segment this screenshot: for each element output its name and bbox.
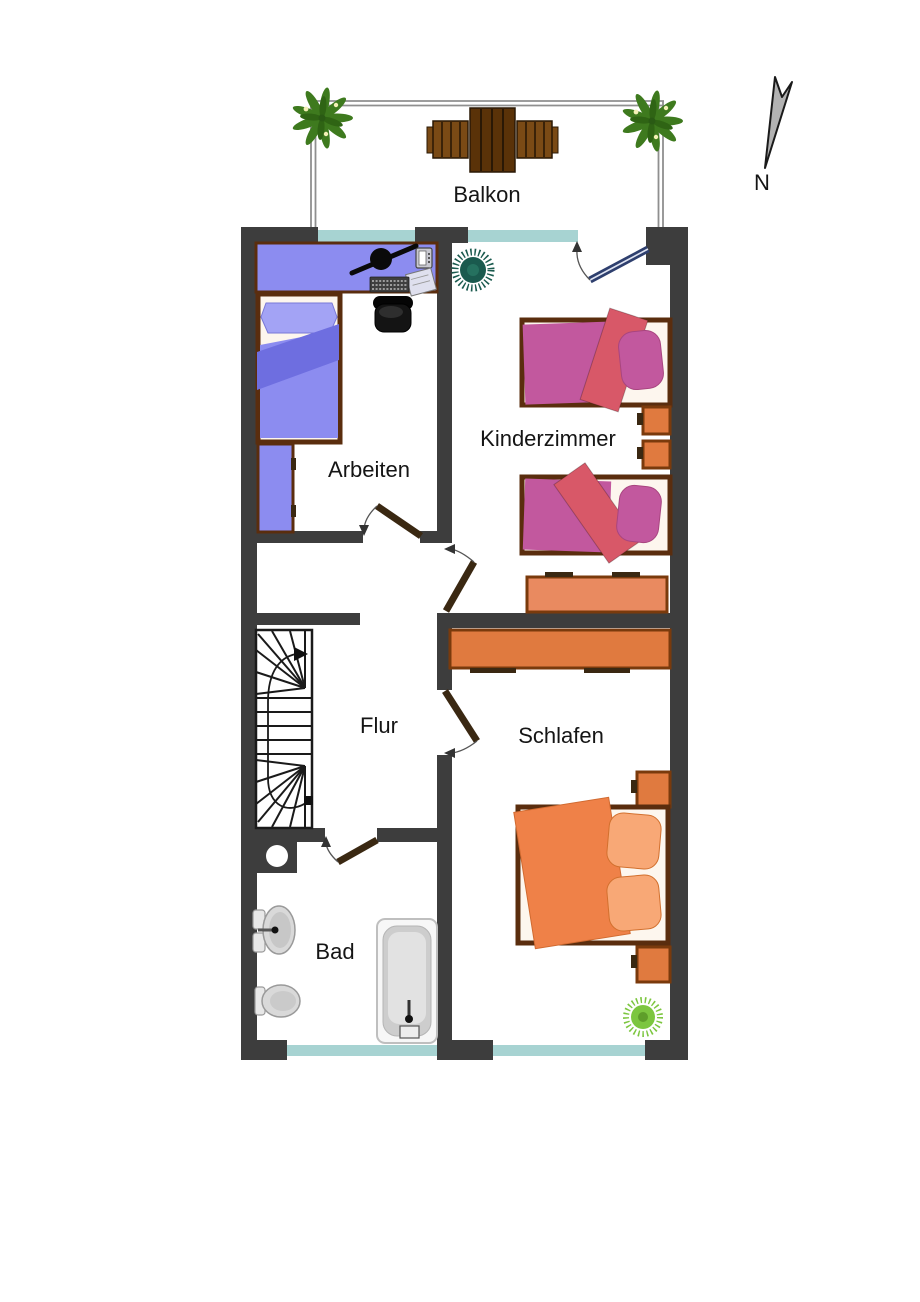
stair-start-marker (304, 796, 313, 805)
kids-plant-icon (455, 252, 491, 288)
wall-kids-bedroom-divider (437, 613, 688, 628)
desk (256, 243, 437, 296)
compass: N (754, 77, 792, 195)
wall-hall-bedroom-lower (437, 755, 452, 1040)
kids-bed-1 (522, 308, 670, 412)
bed-pillow (617, 329, 665, 391)
kids-room: Kinderzimmer (455, 252, 670, 612)
bed-pillow (261, 303, 337, 333)
bedroom: Schlafen (450, 630, 670, 1034)
door-office (359, 506, 421, 536)
window-kids-room-top (468, 230, 578, 242)
balcony-table (470, 108, 515, 172)
balcony-chair-right (517, 121, 558, 158)
bathroom: Bad (253, 906, 437, 1043)
door-kids-room (444, 544, 474, 611)
kids-bed-2 (522, 463, 670, 563)
north-arrow-icon (765, 77, 792, 168)
desk-phone-icon (416, 248, 432, 268)
wall-office-kids-divider (437, 243, 452, 537)
kids-nightstand-1 (637, 407, 670, 434)
sink (253, 906, 295, 954)
bed-pillow (615, 484, 663, 544)
room-label-bathroom: Bad (315, 939, 354, 964)
wall-bottom-segment-3 (645, 1040, 688, 1060)
wardrobe (450, 630, 670, 673)
kids-nightstand-2 (637, 441, 670, 468)
door-bedroom (444, 691, 477, 758)
staircase (256, 630, 313, 828)
room-label-office: Arbeiten (328, 457, 410, 482)
bedroom-plant-icon (626, 1000, 660, 1034)
wall-top-segment-1 (241, 227, 318, 243)
wall-bottom-segment-1 (241, 1040, 287, 1060)
toilet (255, 985, 300, 1017)
office-chair (373, 296, 413, 332)
wall-top-segment-2 (415, 227, 468, 243)
wall-bottom-segment-2 (437, 1040, 493, 1060)
balcony-chair-left (427, 121, 468, 158)
wall-right (670, 227, 688, 1060)
kids-dresser (527, 572, 667, 612)
bedroom-nightstand-1 (631, 772, 670, 807)
floor-plan-drawing: Balkon N (0, 0, 920, 1302)
keyboard-icon (370, 277, 409, 292)
wall-office-hall-stub (420, 531, 452, 543)
bed-pillow-1 (606, 812, 663, 870)
room-label-hallway: Flur (360, 713, 398, 738)
north-label: N (754, 170, 770, 195)
balcony-plant-right-icon (621, 90, 683, 153)
office-shelf (258, 444, 296, 532)
wall-stairwell-top (241, 613, 360, 625)
office-room: Arbeiten (256, 243, 437, 532)
window-bathroom-bottom (287, 1045, 437, 1056)
office-single-bed (257, 294, 340, 442)
wall-bathroom-top-stub (377, 828, 452, 842)
room-label-kids-room: Kinderzimmer (480, 426, 616, 451)
room-label-balcony: Balkon (453, 182, 520, 207)
bathtub (377, 919, 437, 1043)
door-balcony (572, 241, 648, 280)
wall-top-pillar (646, 227, 688, 265)
balcony-plant-left-icon (291, 87, 353, 150)
door-bathroom (321, 836, 377, 862)
duct-circle-icon (266, 845, 288, 867)
window-office-top (318, 230, 415, 242)
double-bed (514, 797, 668, 948)
bedroom-nightstand-2 (631, 947, 670, 982)
window-bedroom-bottom (493, 1045, 645, 1056)
floor-plan-page: Balkon N (0, 0, 920, 1302)
room-label-bedroom: Schlafen (518, 723, 604, 748)
bed-pillow-2 (606, 874, 663, 932)
balcony-area: Balkon (291, 87, 683, 227)
